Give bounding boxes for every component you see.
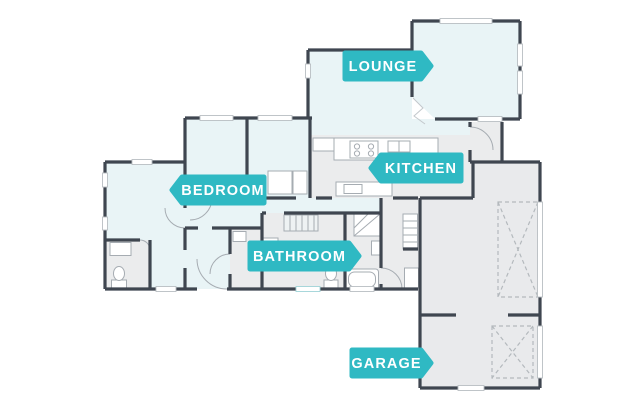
label-bathroom-text: BATHROOM bbox=[253, 249, 346, 265]
window-icon bbox=[103, 217, 108, 230]
window-icon bbox=[478, 117, 502, 122]
label-lounge: LOUNGE bbox=[345, 53, 431, 79]
label-lounge-text: LOUNGE bbox=[349, 59, 418, 75]
garage-door-opening-icon bbox=[538, 326, 543, 378]
toilet-tank-icon bbox=[112, 280, 127, 289]
toilet-tank-icon bbox=[324, 280, 338, 289]
basin-icon bbox=[110, 243, 131, 256]
window-icon bbox=[458, 386, 484, 391]
linen-shelf-icon bbox=[284, 215, 318, 231]
floorplan-svg: LOUNGE KITCHEN BEDROOM BATHROOM GARAGE bbox=[0, 0, 635, 405]
label-bathroom: BATHROOM bbox=[250, 243, 359, 269]
label-kitchen-text: KITCHEN bbox=[385, 161, 457, 177]
laundry-cabinet-icon bbox=[405, 268, 419, 288]
label-garage-text: GARAGE bbox=[351, 356, 421, 372]
floorplan: LOUNGE KITCHEN BEDROOM BATHROOM GARAGE bbox=[0, 0, 635, 405]
window-icon bbox=[306, 64, 311, 78]
window-icon bbox=[440, 19, 492, 24]
window-icon bbox=[518, 44, 523, 66]
window-icon bbox=[103, 173, 108, 187]
washer-stack-icon bbox=[403, 214, 418, 249]
label-garage: GARAGE bbox=[351, 350, 431, 376]
closet-icon bbox=[293, 171, 307, 194]
window-icon bbox=[350, 287, 374, 292]
basin-icon bbox=[233, 232, 246, 242]
window-icon bbox=[258, 116, 292, 121]
closet-icon bbox=[268, 171, 292, 194]
window-icon bbox=[156, 287, 176, 292]
window-icon bbox=[518, 71, 523, 94]
stove-icon bbox=[350, 141, 378, 158]
window-icon bbox=[132, 160, 152, 165]
window-icon bbox=[200, 116, 233, 121]
toilet-icon bbox=[114, 267, 125, 281]
island-sink-icon bbox=[344, 185, 362, 194]
label-bedroom-text: BEDROOM bbox=[181, 183, 264, 199]
window-icon bbox=[296, 287, 320, 292]
room-porch bbox=[470, 122, 502, 162]
kitchen-cabinet-icon bbox=[313, 138, 334, 151]
label-kitchen: KITCHEN bbox=[371, 155, 461, 181]
label-bedroom: BEDROOM bbox=[172, 177, 265, 203]
garage-door-opening-icon bbox=[538, 202, 543, 297]
